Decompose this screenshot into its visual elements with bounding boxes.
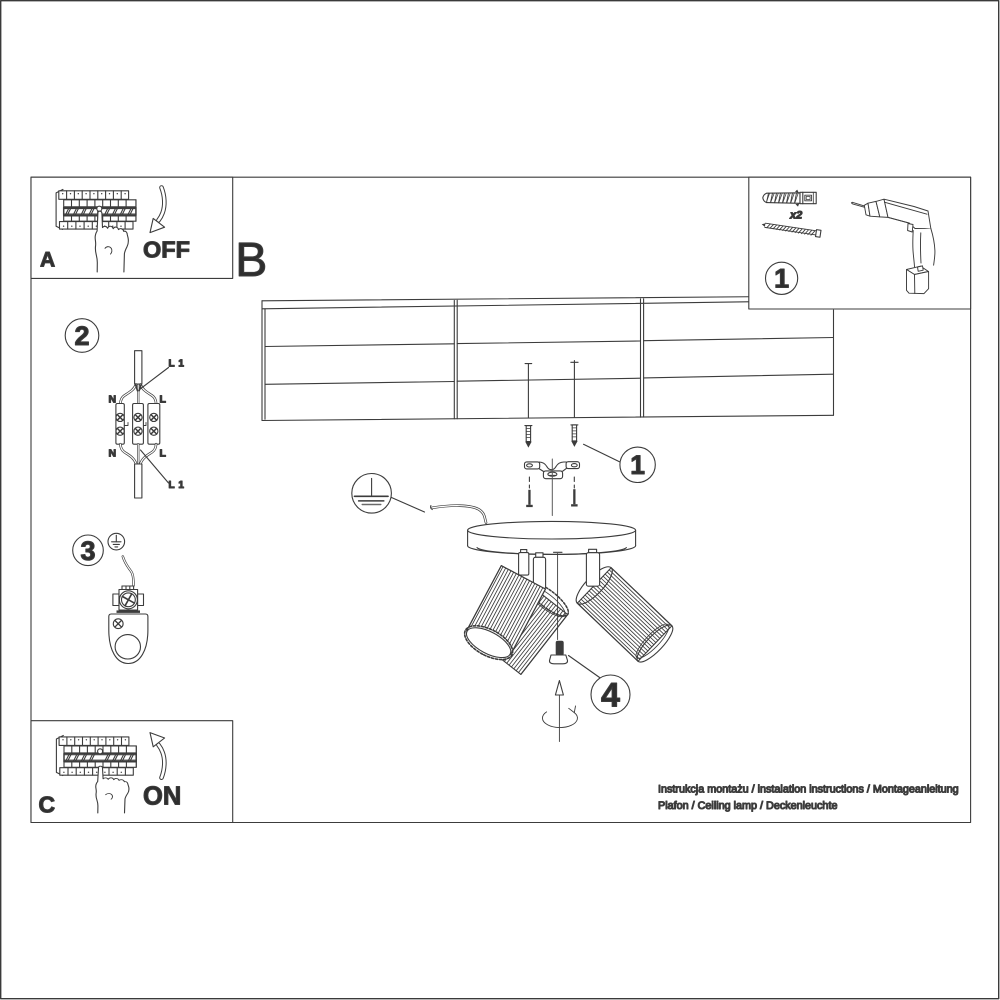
svg-text:OFF: OFF — [143, 237, 190, 263]
svg-text:Instrukcja montażu / instalati: Instrukcja montażu / instalation instruc… — [658, 784, 959, 796]
svg-text:L: L — [160, 448, 167, 460]
svg-text:L 1: L 1 — [169, 359, 185, 370]
svg-text:3: 3 — [80, 536, 95, 566]
svg-text:L: L — [160, 394, 167, 406]
svg-text:2: 2 — [74, 321, 89, 351]
svg-text:N: N — [109, 448, 117, 460]
svg-text:4: 4 — [601, 677, 620, 715]
svg-text:1: 1 — [774, 264, 789, 294]
svg-text:C: C — [39, 792, 56, 818]
svg-text:x2: x2 — [789, 210, 802, 222]
svg-text:Plafon / Ceiling lamp / Decken: Plafon / Ceiling lamp / Deckenleuchte — [658, 800, 837, 812]
svg-text:1: 1 — [630, 450, 645, 480]
svg-text:N: N — [109, 394, 117, 406]
svg-text:ON: ON — [143, 783, 181, 811]
svg-text:A: A — [40, 249, 55, 272]
svg-text:B: B — [235, 234, 267, 287]
svg-text:L 1: L 1 — [169, 480, 185, 491]
